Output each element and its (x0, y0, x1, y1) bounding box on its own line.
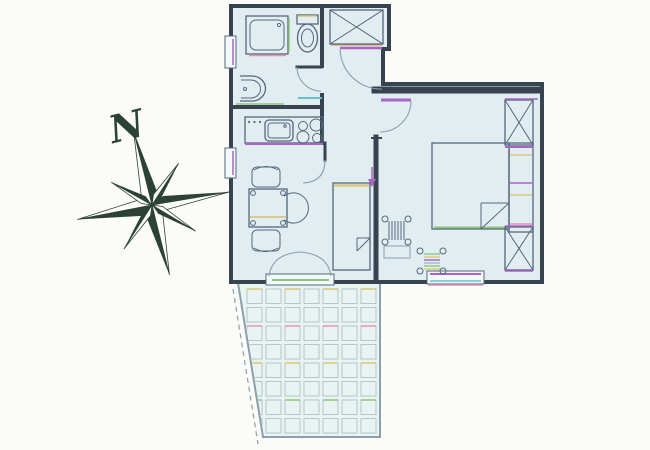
floor-plan-page: { "meta": { "type": "apartment-floor-pla… (0, 0, 650, 450)
terrace (233, 283, 380, 444)
compass-north-label: N (103, 100, 150, 153)
window-bathroom-west (225, 36, 236, 68)
floor-plan-canvas: N (0, 0, 650, 450)
compass-rose (60, 112, 245, 293)
window-bedroom-south (427, 271, 484, 285)
window-living-west (225, 148, 236, 178)
